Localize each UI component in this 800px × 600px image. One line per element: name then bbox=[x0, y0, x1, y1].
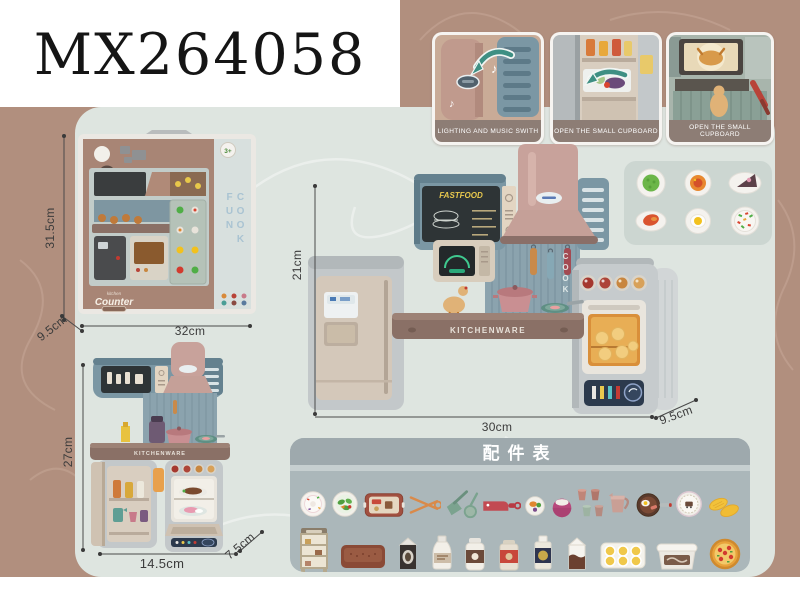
measuring-cup-icon bbox=[607, 490, 633, 520]
small-width-label: 14.5cm bbox=[132, 556, 192, 571]
fruit-plate-icon bbox=[521, 492, 549, 520]
food-plates bbox=[624, 161, 772, 245]
small-height-label: 27cm bbox=[61, 427, 75, 477]
corn-icon bbox=[705, 494, 743, 520]
microwave bbox=[433, 240, 495, 282]
birthday-cake-icon bbox=[297, 488, 329, 520]
oven-unit bbox=[572, 258, 678, 414]
fastfood-sign: FASTFOOD bbox=[439, 191, 483, 200]
toy-chicken bbox=[443, 286, 468, 317]
title-box: MX264058 bbox=[0, 0, 400, 107]
counter: KITCHENWARE bbox=[392, 313, 584, 339]
small-oven bbox=[165, 460, 223, 552]
hood-switch-photo: ♪ ♪ bbox=[435, 35, 541, 120]
sauce-jar-icon bbox=[496, 538, 522, 572]
menu-board: FASTFOOD bbox=[414, 174, 506, 250]
small-kitchen-figure: KITCHENWARE bbox=[85, 340, 255, 565]
svg-text:kitchen: kitchen bbox=[107, 291, 122, 296]
display-rack-icon bbox=[297, 526, 331, 572]
callout-lighting-music: ♪ ♪ LIGHTING AND MUSIC SWITH bbox=[432, 32, 544, 145]
box-width-label: 32cm bbox=[165, 324, 215, 338]
milk-bottle-icon bbox=[430, 534, 454, 572]
callout-label: OPEN THE SMALL CUPBOARD bbox=[553, 120, 659, 142]
plate-peas bbox=[637, 169, 665, 197]
milk-jug-icon bbox=[462, 536, 488, 572]
shovel-ladle-icon bbox=[441, 488, 479, 520]
accessories-row-1 bbox=[290, 471, 750, 520]
callout-open-cupboard-1-image bbox=[553, 35, 659, 120]
counter-logo: KITCHENWARE bbox=[134, 451, 186, 457]
main-height-label: 21cm bbox=[290, 240, 304, 290]
ice-cream-tub-icon bbox=[655, 540, 699, 572]
accessories-header: 配件表 bbox=[290, 438, 750, 465]
callout-lighting-music-image: ♪ ♪ bbox=[435, 35, 541, 120]
baking-tray-icon bbox=[339, 542, 387, 572]
cleaver-icon bbox=[479, 494, 521, 520]
box-side-text: COOK FUN bbox=[224, 192, 246, 288]
callout-label: LIGHTING AND MUSIC SWITH bbox=[435, 120, 541, 142]
orange-handle bbox=[153, 468, 164, 492]
salad-plate-icon bbox=[329, 488, 361, 520]
accessories-panel: 配件表 bbox=[290, 438, 750, 572]
egg-tray-icon bbox=[599, 540, 647, 572]
callout-open-cupboard-1: OPEN THE SMALL CUPBOARD bbox=[550, 32, 662, 145]
small-fridge-open bbox=[91, 460, 157, 548]
music-note-icon: ♪ bbox=[449, 98, 455, 110]
callout-label: OPEN THE SMALL CUPBOARD bbox=[669, 120, 771, 142]
dessert-bowl-icon bbox=[549, 494, 575, 520]
plate-cake-slice bbox=[729, 173, 761, 194]
counter-logo: KITCHENWARE bbox=[450, 326, 526, 335]
breakfast-pan-icon bbox=[633, 490, 673, 520]
backsplash-text: COOK bbox=[561, 252, 570, 302]
plate-tomato bbox=[685, 170, 711, 196]
cocoa-carton-icon bbox=[564, 534, 590, 572]
plate-fried-egg bbox=[686, 209, 711, 234]
small-counter: KITCHENWARE bbox=[90, 443, 230, 460]
tongs-icon bbox=[407, 490, 441, 520]
plate-seafood bbox=[636, 211, 666, 231]
music-note-icon: ♪ bbox=[491, 61, 498, 76]
accessories-row-2 bbox=[290, 520, 750, 572]
product-code: MX264058 bbox=[0, 0, 400, 107]
box-height-label: 31.5cm bbox=[43, 200, 57, 256]
moon-graphic bbox=[94, 146, 110, 162]
callout-open-cupboard-2: OPEN THE SMALL CUPBOARD bbox=[666, 32, 774, 145]
milk-carton-icon bbox=[395, 534, 421, 572]
fridge-open-photo bbox=[553, 35, 659, 120]
plate-veggie bbox=[731, 207, 759, 235]
callout-open-cupboard-2-image bbox=[669, 35, 771, 120]
oven-chicken-photo bbox=[669, 35, 771, 120]
oven-control-panel bbox=[584, 380, 644, 406]
svg-text:3+: 3+ bbox=[224, 148, 232, 155]
cups-icon bbox=[575, 488, 607, 520]
oil-bottle-icon bbox=[530, 534, 556, 572]
fridge bbox=[308, 256, 404, 410]
main-width-label: 30cm bbox=[472, 420, 522, 434]
box-handle bbox=[146, 130, 192, 134]
food-plates-panel bbox=[624, 161, 772, 245]
serving-tray-icon bbox=[361, 490, 407, 520]
product-sheet: MX264058 ♪ ♪ LIGHTING AND MUSIC SWITH bbox=[0, 0, 800, 600]
pizza-icon bbox=[707, 536, 743, 572]
oven-door bbox=[582, 300, 646, 374]
box-window bbox=[89, 168, 209, 286]
pattern-plate-icon bbox=[673, 488, 705, 520]
